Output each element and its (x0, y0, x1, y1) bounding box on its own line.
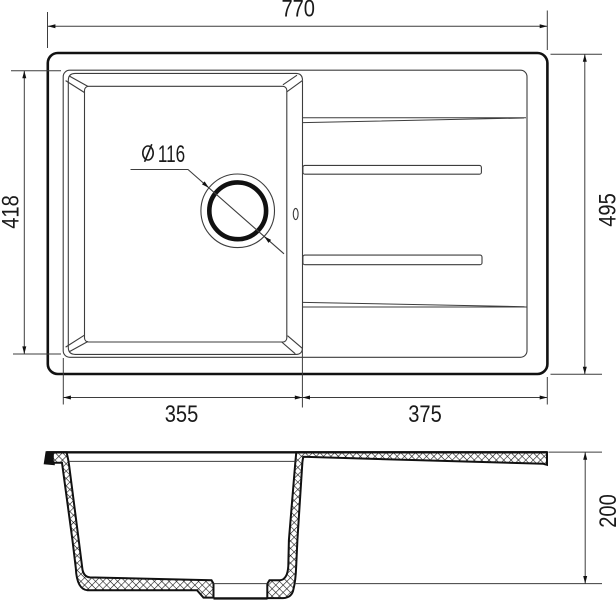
svg-text:355: 355 (165, 400, 199, 427)
svg-text:770: 770 (281, 0, 315, 22)
svg-text:375: 375 (408, 400, 442, 427)
svg-text:418: 418 (0, 195, 24, 229)
svg-text:495: 495 (594, 193, 616, 227)
svg-text:200: 200 (594, 494, 616, 528)
svg-text:116: 116 (158, 141, 185, 168)
